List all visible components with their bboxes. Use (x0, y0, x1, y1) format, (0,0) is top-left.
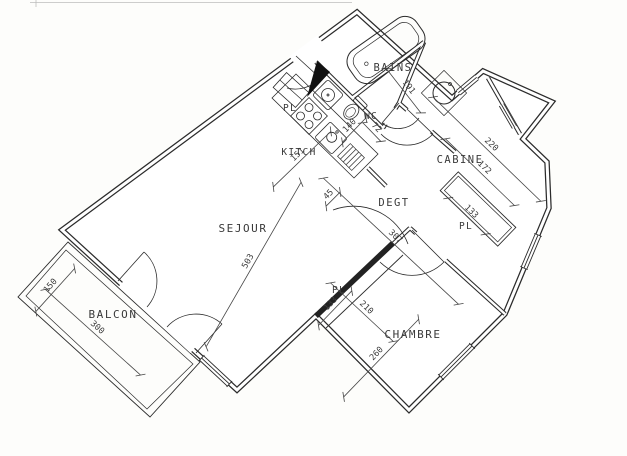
room-label-pl-cabine: PL (459, 221, 473, 232)
room-label-chambre: CHAMBRE (384, 328, 441, 341)
room-label-kitch: KITCH (281, 147, 316, 158)
room-label-pl-entry: PL (283, 103, 297, 114)
room-label-sejour: SEJOUR (219, 222, 268, 235)
room-label-degt: DEGT (378, 197, 409, 209)
room-label-pl-chambre: PL (332, 285, 346, 296)
room-label-balcon: BALCON (89, 308, 138, 321)
room-label-cabine: CABINE (437, 154, 484, 166)
floorplan-canvas: 5031514519114072220172133307210260133150… (0, 0, 627, 456)
room-label-wc: WC (364, 111, 378, 122)
floorplan-page: 5031514519114072220172133307210260133150… (0, 0, 627, 456)
room-label-bains: BAINS (374, 62, 413, 74)
